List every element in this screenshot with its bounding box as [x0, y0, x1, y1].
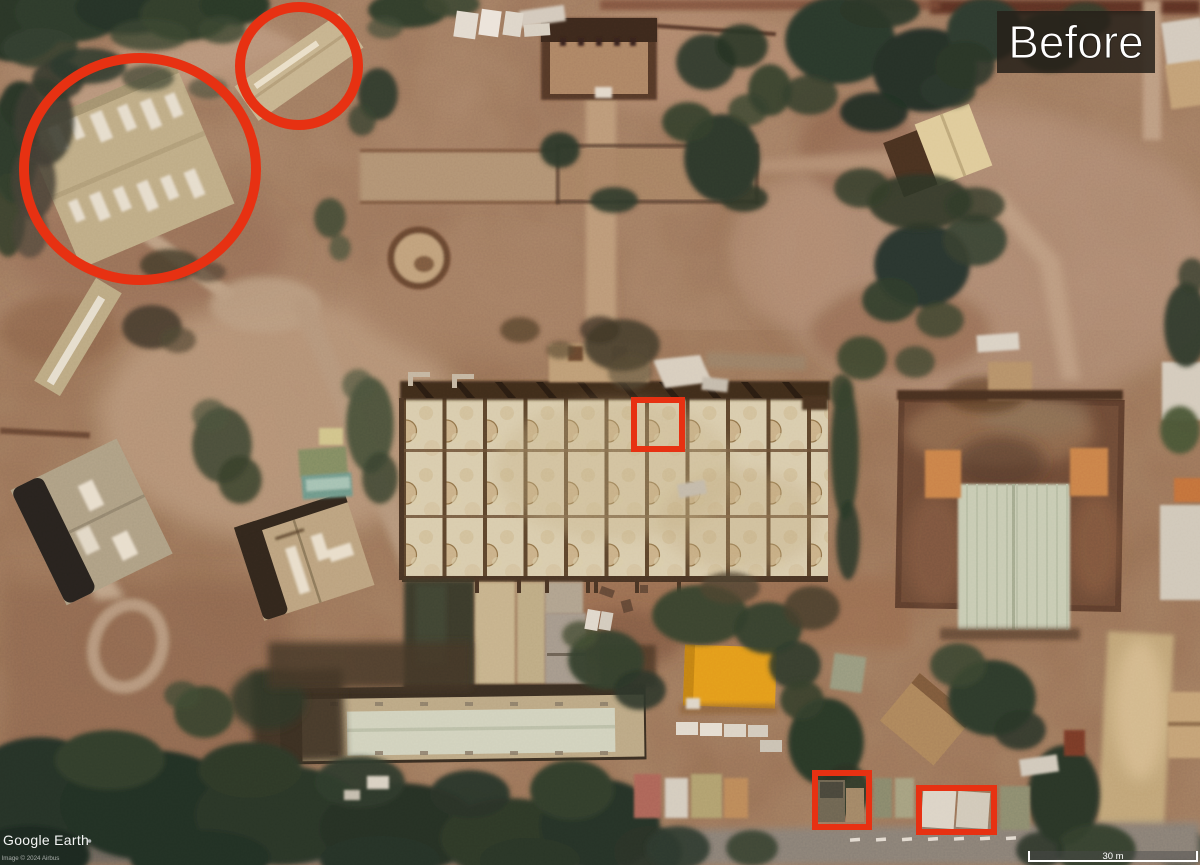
- svg-text:30 m: 30 m: [1102, 851, 1123, 862]
- svg-text:Google Earth: Google Earth: [3, 832, 89, 848]
- svg-text:Before: Before: [1008, 16, 1144, 68]
- svg-text:Image © 2024 Airbus: Image © 2024 Airbus: [2, 855, 60, 862]
